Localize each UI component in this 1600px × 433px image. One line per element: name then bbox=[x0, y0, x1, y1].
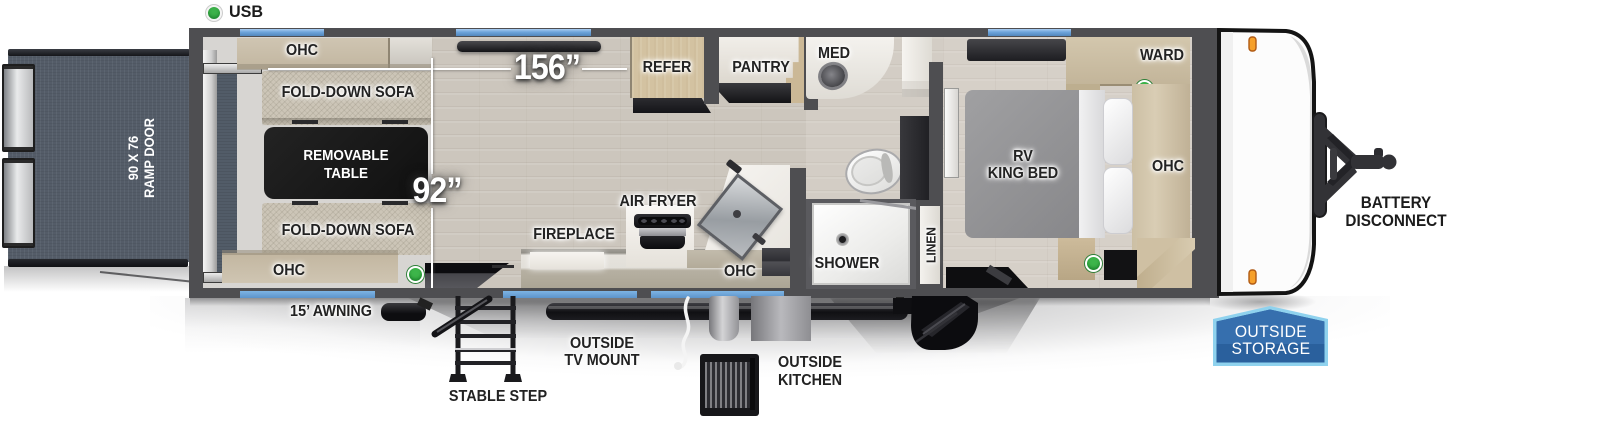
svg-text:STORAGE: STORAGE bbox=[1232, 340, 1311, 358]
svg-text:OUTSIDE: OUTSIDE bbox=[1235, 323, 1307, 341]
